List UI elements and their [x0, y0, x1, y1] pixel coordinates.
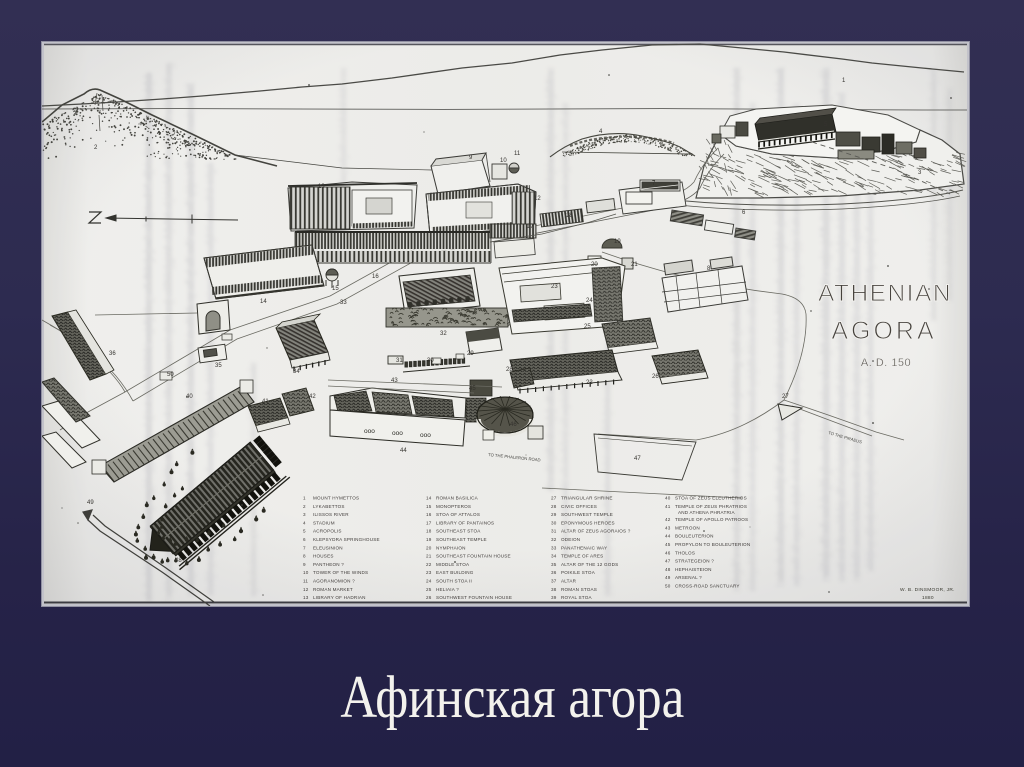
svg-text:21SOUTHEAST FOUNTAIN HOUSE: 21SOUTHEAST FOUNTAIN HOUSE: [426, 554, 511, 559]
svg-text:AND ATHENA PHRATRIA: AND ATHENA PHRATRIA: [678, 510, 735, 515]
svg-text:13LIBRARY OF HADRIAN: 13LIBRARY OF HADRIAN: [303, 595, 366, 600]
svg-text:17: 17: [527, 224, 534, 230]
svg-text:27: 27: [782, 394, 789, 400]
svg-text:западной зрелищ устроенный свя: западной зрелищ устроенный святилище вор…: [560, 102, 574, 562]
svg-text:17LIBRARY OF PANTAINOS: 17LIBRARY OF PANTAINOS: [426, 520, 494, 525]
svg-text:ooo: ooo: [364, 428, 375, 435]
svg-text:31ALTAR OF ZEUS AGORAIOS ?: 31ALTAR OF ZEUS AGORAIOS ?: [551, 529, 631, 534]
svg-text:45PROPYLON TO BOULEUTERION: 45PROPYLON TO BOULEUTERION: [665, 542, 750, 547]
svg-text:35: 35: [215, 363, 222, 369]
svg-text:32: 32: [440, 331, 447, 337]
svg-text:41: 41: [262, 399, 269, 405]
svg-text:20: 20: [591, 262, 598, 268]
svg-text:46: 46: [510, 422, 517, 428]
svg-text:49: 49: [87, 500, 94, 506]
svg-text:36: 36: [109, 351, 116, 357]
svg-text:W. B. DINSMOOR, JR.: W. B. DINSMOOR, JR.: [900, 587, 955, 593]
svg-text:46THOLOS: 46THOLOS: [665, 550, 695, 555]
svg-text:22: 22: [586, 380, 593, 386]
svg-text:43METROON: 43METROON: [665, 525, 700, 530]
svg-text:12: 12: [534, 196, 541, 202]
svg-text:29: 29: [467, 351, 474, 357]
svg-text:19SOUTHEAST TEMPLE: 19SOUTHEAST TEMPLE: [426, 537, 487, 542]
svg-text:26SOUTHWEST FOUNTAIN HOUSE: 26SOUTHWEST FOUNTAIN HOUSE: [426, 595, 512, 600]
svg-text:27TRIANGULAR SHRINE: 27TRIANGULAR SHRINE: [551, 496, 613, 501]
svg-text:29SOUTHWEST TEMPLE: 29SOUTHWEST TEMPLE: [551, 512, 613, 517]
svg-text:13: 13: [318, 184, 325, 190]
svg-text:10TOWER OF THE WINDS: 10TOWER OF THE WINDS: [303, 570, 368, 575]
svg-text:35ALTAR OF THE 12 GODS: 35ALTAR OF THE 12 GODS: [551, 562, 618, 567]
svg-text:19: 19: [614, 239, 621, 245]
svg-text:42TEMPLE OF APOLLO PATROOS: 42TEMPLE OF APOLLO PATROOS: [665, 517, 748, 522]
svg-text:14: 14: [260, 299, 267, 305]
svg-text:11: 11: [514, 151, 521, 157]
svg-text:15: 15: [332, 286, 339, 292]
svg-text:ooo: ooo: [392, 430, 403, 437]
svg-text:ATHENIAN: ATHENIAN: [818, 280, 952, 307]
svg-text:24: 24: [586, 298, 593, 304]
svg-text:50CROSS-ROAD SANCTUARY: 50CROSS-ROAD SANCTUARY: [665, 584, 740, 589]
svg-text:21: 21: [631, 262, 638, 268]
svg-text:50: 50: [167, 372, 174, 378]
svg-text:ooo: ooo: [420, 432, 431, 439]
svg-text:37ALTAR: 37ALTAR: [551, 579, 577, 584]
svg-text:дворцовая ворота зрелищ гражда: дворцовая ворота зрелищ граждан памятник…: [865, 192, 879, 573]
svg-text:47: 47: [634, 456, 641, 462]
svg-text:48: 48: [175, 558, 182, 564]
svg-text:10: 10: [500, 158, 507, 164]
svg-text:площадь стены городской городс: площадь стены городской городской театр …: [944, 87, 958, 302]
svg-text:32ODEION: 32ODEION: [551, 537, 580, 542]
svg-text:31: 31: [396, 358, 403, 364]
svg-text:AGORA: AGORA: [831, 317, 936, 345]
svg-text:43: 43: [391, 378, 398, 384]
svg-text:30: 30: [427, 358, 434, 364]
svg-text:28: 28: [506, 367, 513, 373]
svg-text:34: 34: [293, 369, 300, 375]
svg-text:23: 23: [551, 284, 558, 290]
svg-text:42: 42: [309, 394, 316, 400]
svg-text:44: 44: [400, 448, 407, 454]
svg-text:33: 33: [340, 300, 347, 306]
svg-text:30EPONYMOUS HEROES: 30EPONYMOUS HEROES: [551, 520, 615, 525]
svg-text:25: 25: [584, 324, 591, 330]
svg-text:40STOA OF ZEUS ELEUTHERIOS: 40STOA OF ZEUS ELEUTHERIOS: [665, 496, 747, 501]
svg-text:26: 26: [652, 374, 659, 380]
svg-text:25HELIAIA ?: 25HELIAIA ?: [426, 587, 459, 592]
svg-text:6KLEPSYDRA SPRINGHOUSE: 6KLEPSYDRA SPRINGHOUSE: [303, 537, 380, 542]
svg-text:41TEMPLE OF ZEUS PHRATRIOS: 41TEMPLE OF ZEUS PHRATRIOS: [665, 504, 747, 509]
svg-text:16: 16: [372, 274, 379, 280]
svg-text:18: 18: [566, 213, 573, 219]
svg-text:45: 45: [469, 386, 476, 392]
svg-text:1880: 1880: [922, 595, 934, 601]
svg-text:A. D. 150: A. D. 150: [861, 357, 911, 369]
